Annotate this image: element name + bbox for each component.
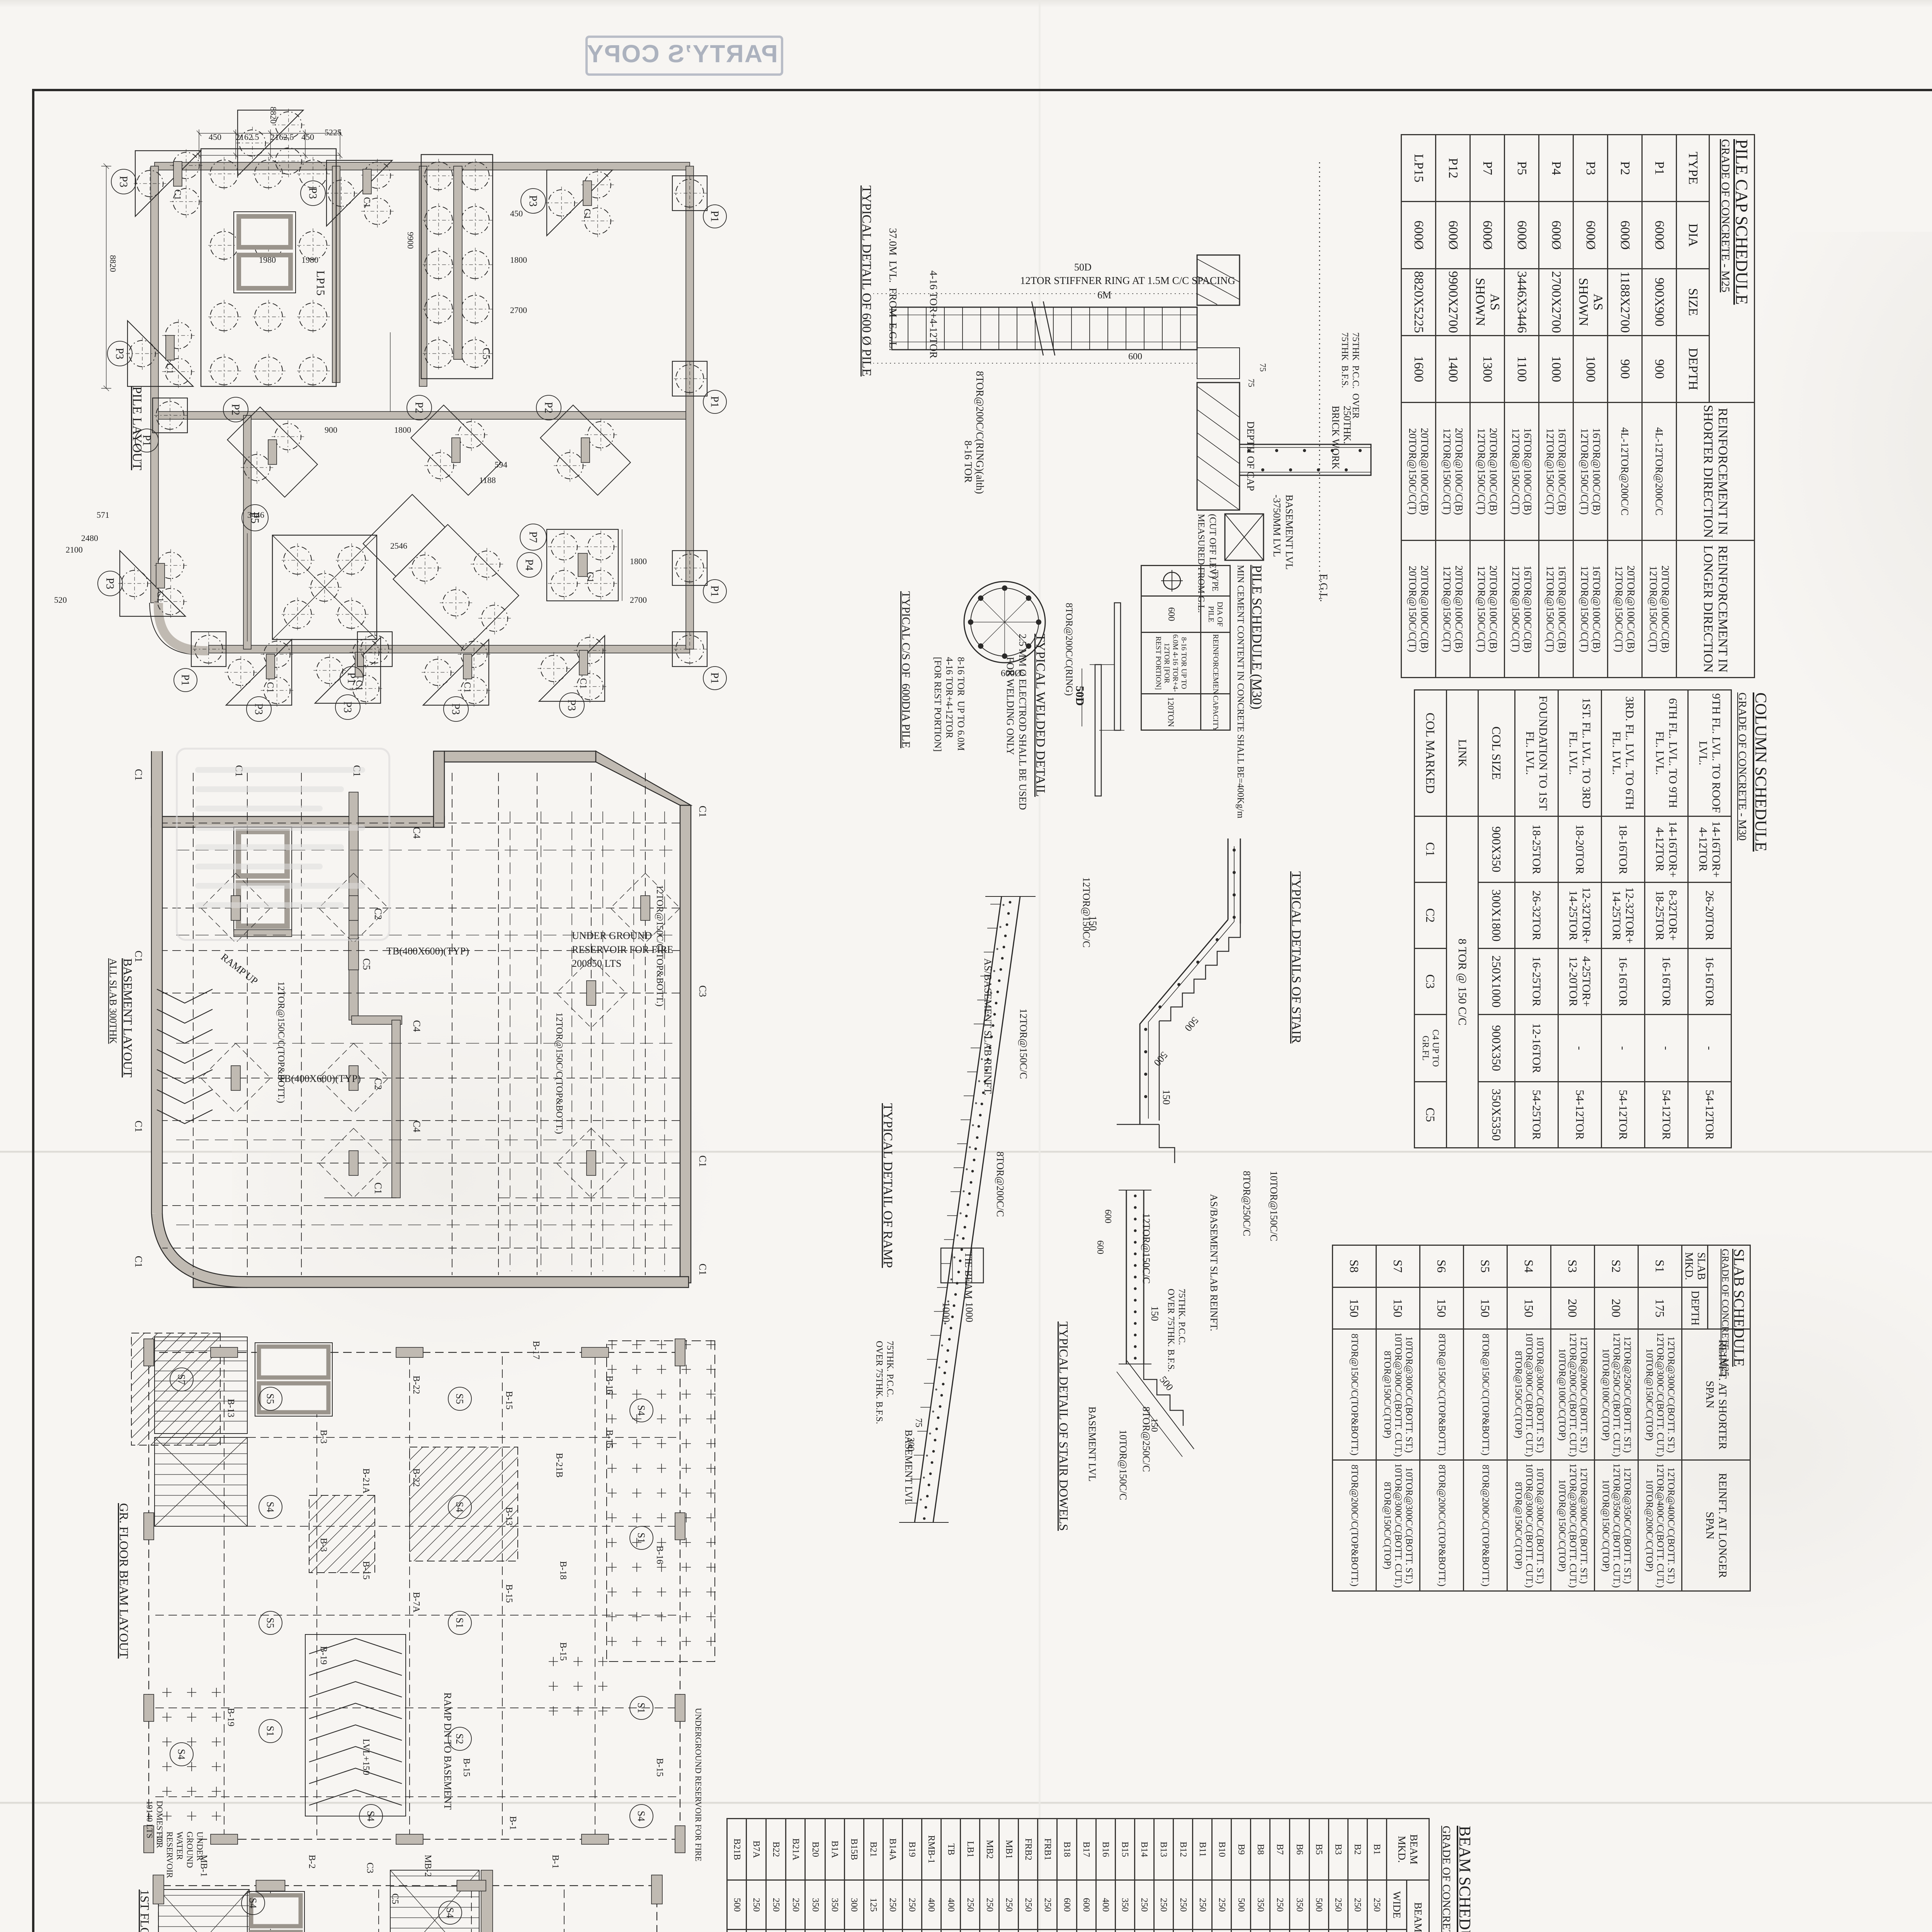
- svg-text:2100: 2100: [66, 545, 83, 554]
- svg-text:3446: 3446: [247, 510, 264, 520]
- svg-text:2700: 2700: [510, 305, 527, 315]
- svg-text:RAMP UP: RAMP UP: [219, 951, 260, 987]
- svg-text:LP15: LP15: [314, 270, 327, 296]
- svg-text:S5: S5: [265, 1393, 276, 1404]
- svg-text:MB-2: MB-2: [423, 1855, 433, 1877]
- svg-text:RAMP DN TO BASEMENT: RAMP DN TO BASEMENT: [442, 1692, 453, 1810]
- svg-text:2162.5: 2162.5: [270, 132, 294, 142]
- svg-text:C1: C1: [697, 1264, 708, 1275]
- svg-text:8TOR@200C/C: 8TOR@200C/C: [995, 1151, 1006, 1217]
- svg-text:B-1: B-1: [508, 1816, 518, 1830]
- svg-text:450: 450: [209, 132, 221, 142]
- svg-text:C1: C1: [133, 1256, 144, 1267]
- svg-text:MB-1: MB-1: [199, 1855, 209, 1877]
- svg-text:C5: C5: [481, 348, 492, 359]
- svg-text:2162.5: 2162.5: [236, 132, 259, 142]
- svg-text:600: 600: [1095, 1240, 1105, 1254]
- svg-text:2480: 2480: [81, 533, 98, 543]
- svg-text:P3: P3: [449, 703, 461, 715]
- svg-text:C5: C5: [390, 1893, 400, 1904]
- svg-text:B-22: B-22: [411, 1468, 421, 1487]
- svg-text:P3: P3: [565, 699, 577, 711]
- svg-text:150: 150: [1149, 1306, 1160, 1321]
- svg-text:B-18: B-18: [558, 1561, 568, 1580]
- svg-text:B-13: B-13: [504, 1507, 514, 1526]
- svg-text:B-15: B-15: [504, 1584, 514, 1603]
- svg-text:S1: S1: [636, 1532, 647, 1543]
- svg-text:C5: C5: [361, 958, 372, 970]
- svg-text:UNDER GROUND: UNDER GROUND: [572, 930, 652, 941]
- svg-text:1000: 1000: [964, 1302, 975, 1322]
- svg-text:B-3: B-3: [318, 1430, 328, 1444]
- svg-text:500: 500: [1151, 1049, 1170, 1068]
- svg-text:C4: C4: [411, 827, 422, 838]
- svg-text:50D: 50D: [1074, 262, 1092, 273]
- svg-text:600: 600: [1128, 352, 1142, 362]
- svg-text:C1: C1: [133, 1121, 144, 1132]
- svg-text:C4: C4: [411, 1020, 422, 1032]
- svg-text:P3: P3: [104, 578, 116, 589]
- svg-text:S5: S5: [265, 1617, 276, 1628]
- svg-text:9900: 9900: [406, 232, 415, 249]
- svg-text:1800: 1800: [510, 255, 527, 265]
- svg-text:B-15: B-15: [655, 1758, 665, 1777]
- svg-text:P1: P1: [708, 396, 720, 408]
- svg-text:6M: 6M: [1097, 289, 1111, 301]
- svg-text:12TOR@150C/C: 12TOR@150C/C: [1018, 1009, 1029, 1079]
- svg-text:B-17: B-17: [531, 1341, 541, 1359]
- svg-text:S4: S4: [176, 1749, 187, 1759]
- svg-text:RESERVOIR FOR FIRE: RESERVOIR FOR FIRE: [572, 944, 673, 955]
- svg-text:P1: P1: [708, 672, 720, 684]
- svg-text:P1: P1: [179, 674, 191, 686]
- svg-text:UNDERGROUND RESERVOIR FOR FIRE: UNDERGROUND RESERVOIR FOR FIRE: [694, 1708, 703, 1861]
- svg-text:C2: C2: [372, 1078, 384, 1090]
- svg-text:B-19: B-19: [226, 1708, 236, 1726]
- svg-text:P1: P1: [708, 211, 720, 222]
- svg-text:200850 LTS: 200850 LTS: [572, 958, 621, 969]
- svg-text:B-21B: B-21B: [554, 1453, 564, 1478]
- svg-text:75: 75: [913, 1418, 923, 1427]
- svg-text:C1: C1: [582, 209, 592, 219]
- svg-text:TB(400X600)(TYP): TB(400X600)(TYP): [278, 1073, 361, 1084]
- svg-text:P7: P7: [527, 531, 539, 543]
- svg-text:50D: 50D: [1073, 686, 1086, 706]
- svg-text:B-3: B-3: [318, 1538, 328, 1552]
- svg-text:450: 450: [301, 132, 314, 142]
- svg-text:P2: P2: [413, 402, 425, 413]
- svg-text:S7: S7: [176, 1374, 187, 1384]
- svg-text:C3: C3: [365, 1862, 375, 1873]
- svg-text:1800: 1800: [630, 556, 647, 566]
- svg-text:P1: P1: [708, 585, 720, 597]
- svg-text:S1: S1: [265, 1726, 276, 1736]
- svg-text:B-15: B-15: [461, 1758, 471, 1777]
- svg-text:C1: C1: [265, 682, 275, 693]
- svg-text:B-15: B-15: [558, 1642, 568, 1661]
- svg-text:B-21A: B-21A: [361, 1468, 371, 1494]
- svg-text:P2: P2: [229, 404, 241, 415]
- svg-text:S4: S4: [454, 1502, 465, 1512]
- svg-text:P3: P3: [527, 195, 539, 207]
- svg-text:S4: S4: [265, 1502, 276, 1512]
- svg-text:C1: C1: [372, 1182, 384, 1194]
- svg-text:S4: S4: [636, 1811, 647, 1821]
- svg-text:520: 520: [54, 595, 67, 605]
- svg-text:12TOR STIFFNER RING AT 1.5M: 12TOR STIFFNER RING AT 1.5M C/C SPACING: [1020, 275, 1235, 286]
- svg-text:C1: C1: [172, 189, 182, 200]
- svg-text:C1: C1: [697, 1155, 708, 1167]
- svg-text:C1: C1: [362, 197, 372, 208]
- svg-text:B-15: B-15: [361, 1561, 371, 1580]
- svg-text:C1: C1: [165, 363, 175, 374]
- svg-text:1980: 1980: [259, 255, 276, 265]
- svg-text:S4: S4: [247, 1898, 259, 1908]
- svg-text:450: 450: [510, 209, 523, 218]
- svg-text:S4: S4: [365, 1811, 376, 1821]
- svg-text:12TOR@150C/C(TOP&BOTT.): 12TOR@150C/C(TOP&BOTT.): [554, 1012, 564, 1134]
- svg-text:8820: 8820: [108, 255, 118, 272]
- svg-text:C1: C1: [155, 591, 165, 602]
- svg-text:1800: 1800: [394, 425, 411, 435]
- svg-text:B-22: B-22: [411, 1376, 421, 1394]
- svg-text:2700: 2700: [630, 595, 647, 605]
- svg-text:500: 500: [1157, 1374, 1175, 1393]
- svg-text:P3: P3: [117, 176, 129, 187]
- svg-text:P4: P4: [523, 559, 535, 571]
- svg-text:8820: 8820: [269, 107, 278, 124]
- svg-text:S1: S1: [454, 1617, 465, 1628]
- svg-text:B-2: B-2: [307, 1855, 317, 1869]
- svg-text:TB(400X600)(TYP): TB(400X600)(TYP): [386, 946, 469, 957]
- svg-text:C1: C1: [578, 678, 588, 689]
- svg-text:B-16: B-16: [655, 1546, 665, 1564]
- svg-text:1188: 1188: [479, 475, 496, 485]
- svg-text:C3: C3: [697, 985, 708, 997]
- svg-text:19140 LTS: 19140 LTS: [145, 1801, 155, 1838]
- svg-text:S5: S5: [454, 1393, 465, 1404]
- svg-text:S2: S2: [454, 1733, 465, 1744]
- svg-text:900: 900: [325, 425, 337, 435]
- svg-text:C1: C1: [133, 769, 144, 781]
- svg-text:150: 150: [1161, 1090, 1172, 1105]
- svg-text:2546: 2546: [390, 541, 407, 551]
- svg-text:C1: C1: [462, 682, 472, 693]
- svg-text:594: 594: [495, 460, 507, 469]
- svg-text:B-15: B-15: [504, 1391, 514, 1410]
- svg-text:B-13: B-13: [226, 1399, 236, 1417]
- svg-text:S4: S4: [444, 1907, 456, 1918]
- svg-text:B-16: B-16: [604, 1376, 614, 1394]
- svg-text:1980: 1980: [301, 255, 318, 265]
- svg-text:S4: S4: [636, 1405, 647, 1415]
- svg-text:12TOR@150C/C(TOP&BOTT.): 12TOR@150C/C(TOP&BOTT.): [276, 981, 286, 1103]
- svg-text:DOMESTIC: DOMESTIC: [155, 1801, 165, 1844]
- svg-text:P2: P2: [542, 402, 554, 413]
- svg-text:1000: 1000: [940, 1302, 952, 1322]
- svg-text:500: 500: [1182, 1015, 1201, 1034]
- svg-text:S1: S1: [636, 1702, 647, 1713]
- svg-text:B-19: B-19: [318, 1646, 328, 1665]
- svg-text:P1: P1: [345, 672, 357, 684]
- svg-text:C4: C4: [411, 1121, 422, 1132]
- svg-text:C1: C1: [585, 572, 595, 583]
- svg-text:LVL+150: LVL+150: [361, 1739, 371, 1775]
- svg-text:B-7A: B-7A: [411, 1592, 421, 1613]
- svg-text:P3: P3: [341, 701, 353, 713]
- svg-text:571: 571: [97, 510, 109, 520]
- svg-text:C1: C1: [697, 806, 708, 817]
- svg-text:B-15: B-15: [604, 1430, 614, 1448]
- svg-text:600: 600: [1103, 1209, 1113, 1223]
- svg-text:P3: P3: [252, 703, 264, 715]
- svg-text:P3: P3: [113, 348, 125, 359]
- svg-text:B-1: B-1: [550, 1855, 560, 1869]
- svg-text:P3: P3: [306, 187, 318, 199]
